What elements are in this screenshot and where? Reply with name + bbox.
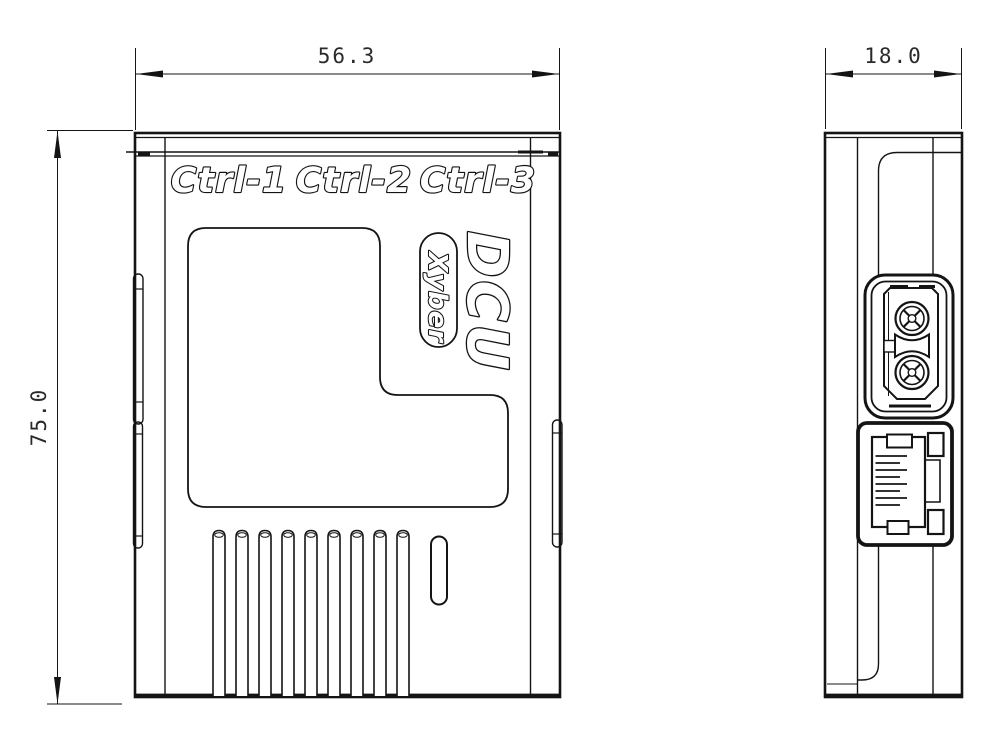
vent-slot <box>259 531 271 697</box>
side-panel-corner-line <box>879 153 963 276</box>
vent-slot <box>213 531 225 697</box>
side-inner-line-lower-left <box>858 545 879 680</box>
vent-slot <box>305 531 317 697</box>
arrowhead-left <box>136 71 163 78</box>
keying-tab <box>884 341 895 353</box>
width-dimension-value: 56.3 <box>318 44 377 68</box>
dimension-height: 75.0 <box>27 131 133 705</box>
vent-slot <box>236 531 248 697</box>
keying-bowtie <box>895 335 929 358</box>
product-name-text: DCU <box>454 231 519 373</box>
pin-center <box>908 369 916 377</box>
height-dimension-value: 75.0 <box>27 388 51 447</box>
arrowhead-bottom <box>54 677 61 704</box>
port-label-ctrl2: Ctrl-2 <box>296 161 413 201</box>
ethernet-bottom-tab <box>888 521 909 534</box>
vent-slot <box>397 531 409 697</box>
power-connector <box>865 275 953 418</box>
ethernet-port <box>858 423 952 545</box>
brand-name-text: Xyber <box>422 250 452 344</box>
ethernet-top-tab <box>887 435 912 448</box>
vent-slot <box>328 531 340 697</box>
ethernet-latch-window-bottom <box>928 510 944 534</box>
dimension-width: 56.3 <box>136 44 560 130</box>
pin-center <box>908 315 916 323</box>
power-pin-top <box>896 302 929 335</box>
port-label-ctrl1: Ctrl-1 <box>171 161 288 201</box>
ethernet-contacts <box>876 456 908 505</box>
side-view <box>825 133 962 697</box>
front-view: Ctrl-1 Ctrl-2 Ctrl-3 DCU Xyber <box>126 133 562 697</box>
arrowhead-right <box>934 71 961 78</box>
oblong-slot <box>431 537 447 605</box>
vent-slot <box>374 531 386 697</box>
technical-drawing: Ctrl-1 Ctrl-2 Ctrl-3 DCU Xyber <box>0 0 1000 737</box>
ethernet-latch-window-top <box>928 433 944 456</box>
drawing-canvas: Ctrl-1 Ctrl-2 Ctrl-3 DCU Xyber <box>0 0 1000 737</box>
arrowhead-right <box>532 71 559 78</box>
arrowhead-left <box>826 71 853 78</box>
port-label-ctrl3: Ctrl-3 <box>420 161 537 201</box>
dimension-depth: 18.0 <box>826 44 962 129</box>
vent-slots <box>213 531 409 697</box>
ethernet-cavity <box>872 437 925 527</box>
arrowhead-top <box>54 131 61 158</box>
front-body-outline <box>135 133 560 697</box>
vent-slot <box>282 531 294 697</box>
power-pin-bottom <box>896 356 929 389</box>
depth-dimension-value: 18.0 <box>864 44 923 68</box>
ethernet-latch-channel <box>925 460 940 502</box>
vent-slot <box>351 531 363 697</box>
